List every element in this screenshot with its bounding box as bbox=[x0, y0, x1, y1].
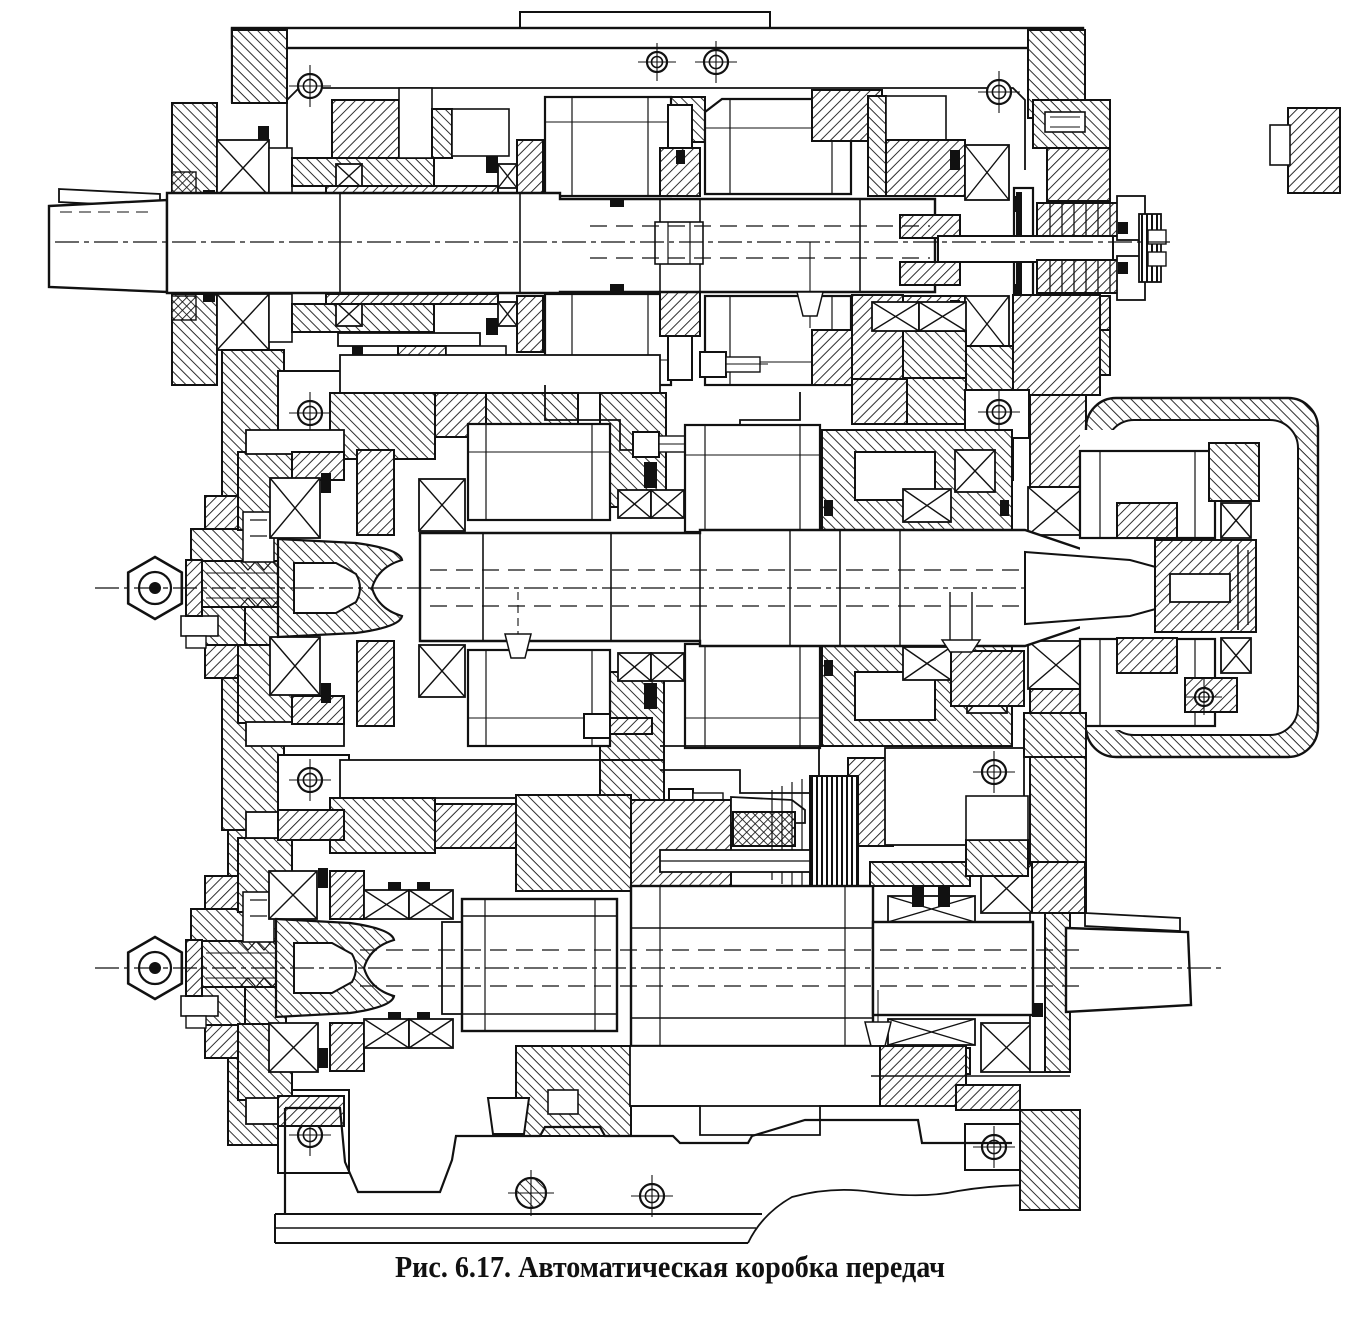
svg-text:Рис. 6.17. Автоматическая коро: Рис. 6.17. Автоматическая коробка переда… bbox=[395, 1249, 945, 1284]
